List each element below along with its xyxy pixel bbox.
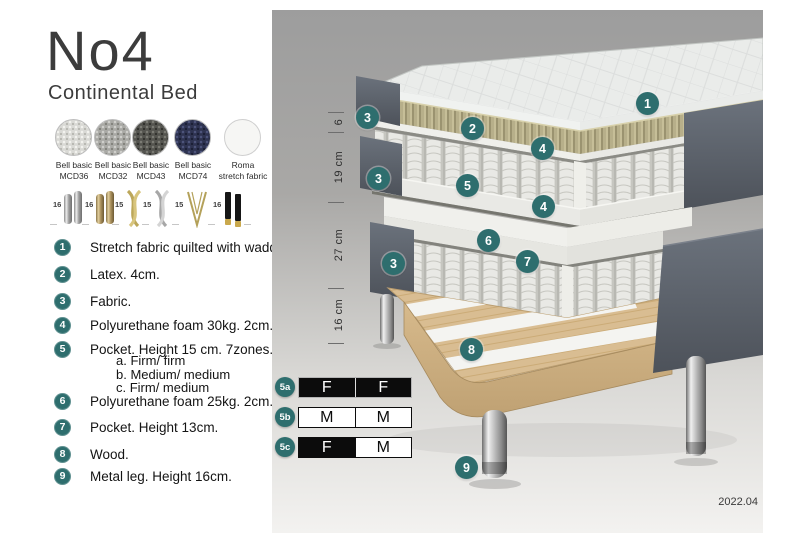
fabric-swatch-mcd43 <box>132 119 169 156</box>
firmness-cell: F <box>299 438 355 457</box>
fabric-swatch-mcd74 <box>174 119 211 156</box>
list-item: 7 Pocket. Height 13cm. <box>54 418 218 436</box>
callout-3: 3 <box>356 106 379 129</box>
list-item: 3 Fabric. <box>54 292 131 310</box>
callout-2: 2 <box>461 117 484 140</box>
callout-3: 3 <box>382 252 405 275</box>
divider <box>172 224 179 225</box>
divider <box>244 224 251 225</box>
fabric-label: Bell basicMCD74 <box>166 160 220 181</box>
firmness-badge-5a: 5a <box>275 377 295 397</box>
leg-option-cylinder-brass: 16 <box>94 190 124 234</box>
callout-6: 6 <box>477 229 500 252</box>
item-number-badge: 6 <box>54 393 71 410</box>
list-item: 4 Polyurethane foam 30kg. 2cm. <box>54 316 273 334</box>
item-number-badge: 5 <box>54 341 71 358</box>
callout-4: 4 <box>531 137 554 160</box>
item-text: Pocket. Height 13cm. <box>90 420 218 435</box>
item-number-badge: 7 <box>54 419 71 436</box>
version-label: 2022.04 <box>718 496 758 508</box>
cylinder-brass-leg-icon <box>94 190 118 228</box>
firmness-badge-5b: 5b <box>275 407 295 427</box>
firmness-row-5c: F M <box>298 437 412 458</box>
pocket-option: b. Medium/ medium <box>116 368 230 382</box>
firmness-cell: M <box>355 438 412 457</box>
fabric-swatch-mcd32 <box>94 119 131 156</box>
callout-5: 5 <box>456 174 479 197</box>
divider <box>112 224 119 225</box>
divider <box>208 224 215 225</box>
item-text: Latex. 4cm. <box>90 267 160 282</box>
callout-8: 8 <box>460 338 483 361</box>
firmness-cell: M <box>299 408 355 427</box>
item-text: Wood. <box>90 447 129 462</box>
fabric-swatch-roma <box>224 119 261 156</box>
fabric-label: Romastretch fabric <box>216 160 270 181</box>
floor-shadow <box>387 423 737 457</box>
leg-height-label: 16 <box>53 200 61 209</box>
firmness-cell: F <box>299 378 355 397</box>
item-number-badge: 2 <box>54 266 71 283</box>
callout-7: 7 <box>516 250 539 273</box>
page-subtitle: Continental Bed <box>48 82 198 105</box>
item-text: Metal leg. Height 16cm. <box>90 469 232 484</box>
tapered-black-leg-icon <box>222 190 246 230</box>
fabric-base-right <box>653 229 763 373</box>
item-number-badge: 3 <box>54 293 71 310</box>
item-number-badge: 1 <box>54 239 71 256</box>
twisted-silver-leg-icon <box>152 190 174 228</box>
pocket-option: a. Firm/ firm <box>116 354 230 368</box>
list-item: 2 Latex. 4cm. <box>54 265 160 283</box>
firmness-cell: F <box>355 378 412 397</box>
ruler-tick <box>328 202 344 203</box>
list-item: 9 Metal leg. Height 16cm. <box>54 467 232 485</box>
list-item: 1 Stretch fabric quilted with wadding. <box>54 238 299 256</box>
cylinder-silver-leg-icon <box>62 190 86 228</box>
item-text: Polyurethane foam 30kg. 2cm. <box>90 318 273 333</box>
item-text: Fabric. <box>90 294 131 309</box>
callout-3: 3 <box>367 167 390 190</box>
divider <box>50 224 57 225</box>
ruler-tick <box>328 343 344 344</box>
firmness-row-5b: M M <box>298 407 412 428</box>
leg-option-cylinder-silver: 16 <box>62 190 92 234</box>
item-number-badge: 4 <box>54 317 71 334</box>
dimension-label-base: 27 cm <box>333 217 345 273</box>
leg-option-hairpin-gold: 15 <box>184 190 214 234</box>
firmness-cell: M <box>355 408 412 427</box>
leg-height-label: 15 <box>175 200 183 209</box>
twisted-gold-leg-icon <box>124 190 146 228</box>
dimension-label-legs: 16 cm <box>333 287 345 343</box>
leg-option-twisted-gold: 15 <box>124 190 154 234</box>
list-item: 8 Wood. <box>54 445 129 463</box>
leg-option-tapered-black-gold: 16 <box>222 190 252 234</box>
back-left-leg <box>373 294 401 349</box>
firmness-row-5a: F F <box>298 377 412 398</box>
callout-4: 4 <box>532 195 555 218</box>
item-text: Polyurethane foam 25kg. 2cm. <box>90 394 273 409</box>
hairpin-leg-icon <box>184 190 210 228</box>
leg-height-label: 16 <box>85 200 93 209</box>
leg-height-label: 15 <box>143 200 151 209</box>
list-item: 6 Polyurethane foam 25kg. 2cm. <box>54 392 273 410</box>
illustration-panel: 6 19 cm 27 cm 16 cm 1 2 3 3 3 4 4 5 6 7 … <box>272 10 763 533</box>
page-title: No4 <box>46 18 155 83</box>
item-number-badge: 8 <box>54 446 71 463</box>
divider <box>82 224 89 225</box>
divider <box>142 224 149 225</box>
leg-height-label: 15 <box>115 200 123 209</box>
fabric-swatch-mcd36 <box>55 119 92 156</box>
callout-1: 1 <box>636 92 659 115</box>
dimension-label-mattress: 19 cm <box>333 139 345 195</box>
leg-option-twisted-silver: 15 <box>152 190 182 234</box>
item-text: Stretch fabric quilted with wadding. <box>90 240 299 255</box>
callout-9: 9 <box>455 456 478 479</box>
firmness-badge-5c: 5c <box>275 437 295 457</box>
leg-height-label: 16 <box>213 200 221 209</box>
item-number-badge: 9 <box>54 468 71 485</box>
pocket-options: a. Firm/ firm b. Medium/ medium c. Firm/… <box>116 354 230 395</box>
